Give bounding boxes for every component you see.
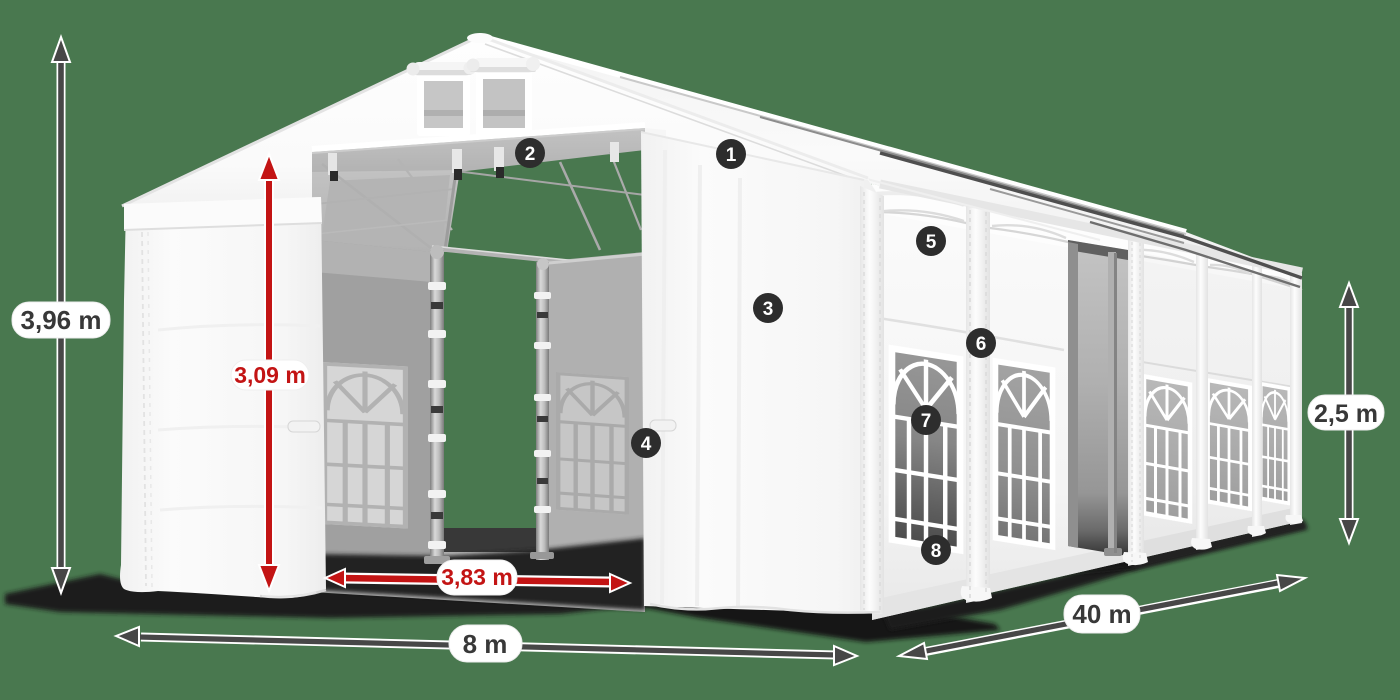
svg-text:3,96 m: 3,96 m — [21, 305, 102, 335]
svg-text:2: 2 — [525, 144, 536, 165]
svg-text:2,5 m: 2,5 m — [1314, 400, 1378, 428]
svg-text:3,83 m: 3,83 m — [441, 564, 513, 590]
svg-text:40 m: 40 m — [1072, 599, 1131, 629]
svg-text:7: 7 — [921, 411, 932, 432]
svg-text:4: 4 — [641, 434, 652, 455]
svg-text:3,09 m: 3,09 m — [234, 362, 306, 388]
svg-text:1: 1 — [726, 145, 737, 166]
svg-text:8 m: 8 m — [463, 629, 508, 659]
svg-text:3: 3 — [763, 299, 774, 320]
svg-text:5: 5 — [926, 232, 937, 253]
svg-text:6: 6 — [976, 334, 987, 355]
svg-text:8: 8 — [931, 541, 942, 562]
